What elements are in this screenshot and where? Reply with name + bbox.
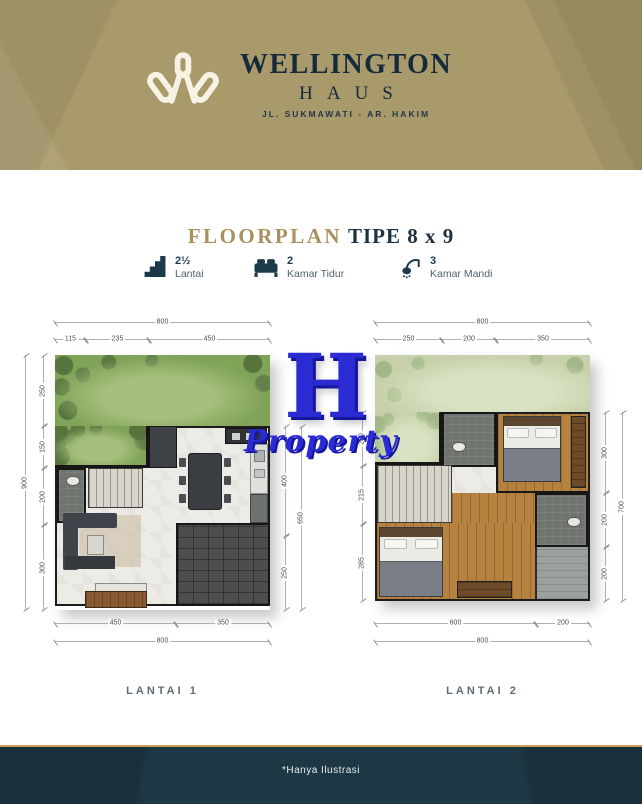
plan1-coffee-table — [87, 535, 104, 555]
plan1-stairs — [88, 468, 143, 508]
plan1-carport — [176, 523, 270, 606]
plan1-garden-side — [55, 426, 149, 468]
plan1-dim-left-seg1: 250 — [43, 355, 44, 426]
plan-label-lantai-1: LANTAI 1 — [55, 685, 270, 697]
plan1-dim-top-seg1: 115 — [55, 339, 86, 340]
plan2-dim-top-total: 800 — [375, 322, 590, 323]
plan1-dim-left-seg3: 200 — [43, 468, 44, 525]
plan2-dim-top-seg3: 350 — [496, 339, 590, 340]
wellington-crown-logo-icon — [146, 48, 220, 123]
footer-disclaimer: *Hanya Ilustrasi — [0, 765, 642, 776]
plan2-wardrobe-2 — [457, 581, 512, 598]
section-title-type: TIPE 8 x 9 — [348, 224, 454, 248]
watermark-h-logo: H — [284, 342, 367, 430]
feature-kamar-tidur-value: 2 — [287, 255, 344, 268]
shower-icon — [398, 255, 422, 279]
stairs-icon — [143, 255, 167, 278]
floorplan-flyer: WELLINGTON HAUS JL. SUKMAWATI - AR. HAKI… — [0, 0, 642, 804]
dining-chair — [224, 476, 231, 485]
plan2-dim-right-seg3: 200 — [605, 547, 606, 601]
plan2-dim-top-seg1: 250 — [375, 339, 442, 340]
plan2-dim-right-total: 700 — [622, 412, 623, 601]
plan2-bed-1 — [503, 416, 561, 482]
plan1-dining-table — [188, 453, 222, 510]
plan2-dim-right-seg1: 300 — [605, 412, 606, 493]
header-banner: WELLINGTON HAUS JL. SUKMAWATI - AR. HAKI… — [0, 0, 642, 170]
plan1-dim-bottom-total: 800 — [55, 641, 270, 642]
brand-text: WELLINGTON HAUS JL. SUKMAWATI - AR. HAKI… — [240, 51, 452, 119]
plan1-fridge — [250, 494, 268, 523]
plan2-hall-floor — [452, 493, 535, 523]
plan2-stairs — [377, 465, 452, 523]
section-title-accent: FLOORPLAN — [188, 224, 342, 248]
dining-chair — [224, 458, 231, 467]
plan1-dim-left-total: 900 — [25, 355, 26, 610]
brand-subtitle: HAUS — [285, 84, 407, 103]
feature-lantai-value: 2½ — [175, 255, 204, 268]
feature-kamar-tidur-label: Kamar Tidur — [287, 268, 344, 280]
plan2-roof-below — [535, 547, 588, 599]
plan1-dim-left-seg2: 150 — [43, 426, 44, 468]
brand-address: JL. SUKMAWATI - AR. HAKIM — [262, 110, 430, 119]
plan2-wardrobe-1 — [571, 416, 586, 488]
brand-name: WELLINGTON — [240, 51, 452, 79]
plan1-dim-top-seg3: 450 — [149, 339, 270, 340]
plan2-dim-right-seg2: 200 — [605, 493, 606, 547]
plan1-dim-left-seg4: 300 — [43, 525, 44, 610]
feature-kamar-mandi-value: 3 — [430, 255, 492, 268]
dining-chair — [179, 458, 186, 467]
plan1-dim-bottom-seg2: 350 — [176, 623, 270, 624]
section-title: FLOORPLAN TIPE 8 x 9 — [0, 224, 642, 249]
feature-kamar-tidur: 2 Kamar Tidur — [253, 255, 344, 285]
plan1-pantry-cabinet — [149, 426, 177, 468]
feature-kamar-mandi: 3 Kamar Mandi — [398, 255, 492, 285]
plan1-dim-right-seg2: 250 — [285, 536, 286, 610]
floorplan-lantai-1 — [55, 355, 270, 610]
brand-lockup: WELLINGTON HAUS JL. SUKMAWATI - AR. HAKI… — [0, 0, 620, 170]
dining-chair — [224, 494, 231, 503]
plan2-dim-bottom-seg2: 200 — [536, 623, 590, 624]
footer-bar: *Hanya Ilustrasi — [0, 745, 642, 804]
feature-lantai-label: Lantai — [175, 268, 204, 280]
plan2-bathroom-1 — [442, 412, 496, 467]
floorplan-lantai-2 — [375, 355, 590, 601]
dining-chair — [179, 476, 186, 485]
bed-icon — [253, 255, 279, 278]
plan2-dim-left-seg2: 215 — [362, 466, 363, 524]
dining-chair — [179, 494, 186, 503]
plan1-dim-top-seg2: 235 — [86, 339, 149, 340]
plan2-garden-view — [375, 355, 590, 412]
plan2-dim-bottom-total: 800 — [375, 641, 590, 642]
feature-kamar-mandi-label: Kamar Mandi — [430, 268, 492, 280]
plan1-dim-bottom-seg1: 450 — [55, 623, 176, 624]
plan1-entry-deck — [85, 591, 147, 608]
plan-label-lantai-2: LANTAI 2 — [375, 685, 590, 697]
plan2-dim-top-seg2: 200 — [442, 339, 496, 340]
feature-lantai: 2½ Lantai — [143, 255, 204, 285]
watermark-property-text: Property — [244, 424, 384, 459]
plan2-dim-bottom-seg1: 600 — [375, 623, 536, 624]
plan1-garden — [55, 355, 270, 426]
plan2-dim-left-seg3: 285 — [362, 524, 363, 601]
plan1-tv-console — [65, 556, 115, 569]
plan2-bed-2 — [379, 527, 443, 597]
plan1-dim-top-total: 800 — [55, 322, 270, 323]
plan2-bathroom-2 — [535, 493, 588, 547]
